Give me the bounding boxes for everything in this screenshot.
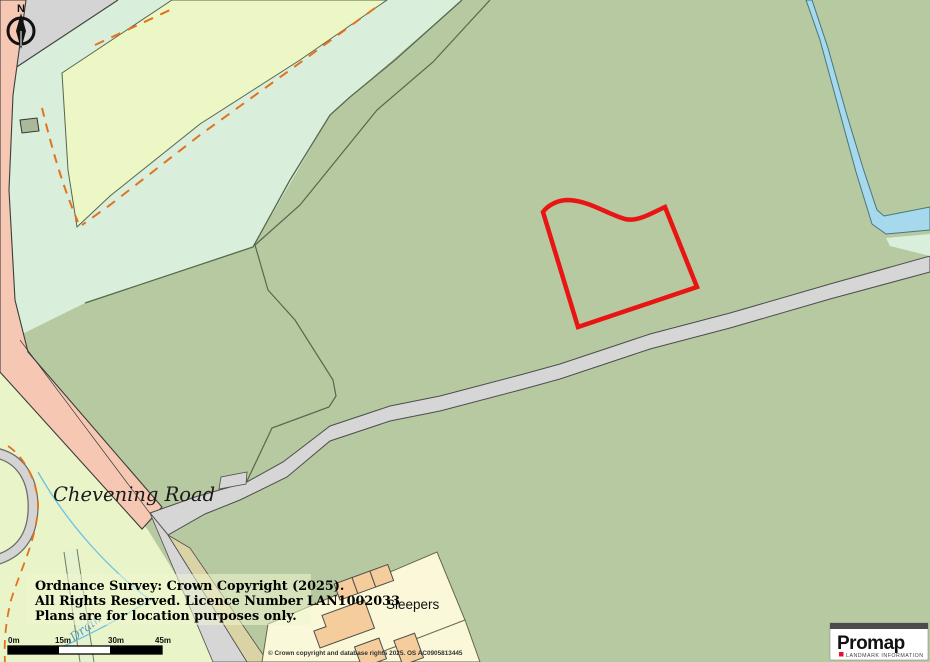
map-canvas[interactable]: Chevening Road Sleepers Drain N Ordnance… — [0, 0, 930, 662]
os-attribution-text: © Crown copyright and database rights 20… — [268, 649, 463, 657]
north-letter: N — [17, 3, 25, 15]
scale-tick-1: 15m — [55, 636, 71, 645]
scale-tick-3: 45m — [155, 636, 171, 645]
scale-tick-2: 30m — [108, 636, 124, 645]
promap-logo: Promap LANDMARK INFORMATION — [830, 623, 928, 660]
road-name-label: Chevening Road — [53, 483, 215, 506]
copyright-line-3: Plans are for location purposes only. — [35, 609, 297, 624]
copyright-line-1: Ordnance Survey: Crown Copyright (2025). — [35, 579, 344, 594]
scale-tick-0: 0m — [8, 636, 20, 645]
map-viewport: Chevening Road Sleepers Drain N Ordnance… — [0, 0, 930, 662]
promap-wordmark: Promap — [837, 633, 905, 654]
landmark-tagline: LANDMARK INFORMATION — [846, 653, 924, 659]
landmark-red-square-icon — [839, 652, 844, 657]
small-building — [20, 118, 39, 133]
copyright-line-2: All Rights Reserved. Licence Number LAN1… — [34, 594, 400, 609]
promap-logo-topbar — [830, 623, 928, 629]
